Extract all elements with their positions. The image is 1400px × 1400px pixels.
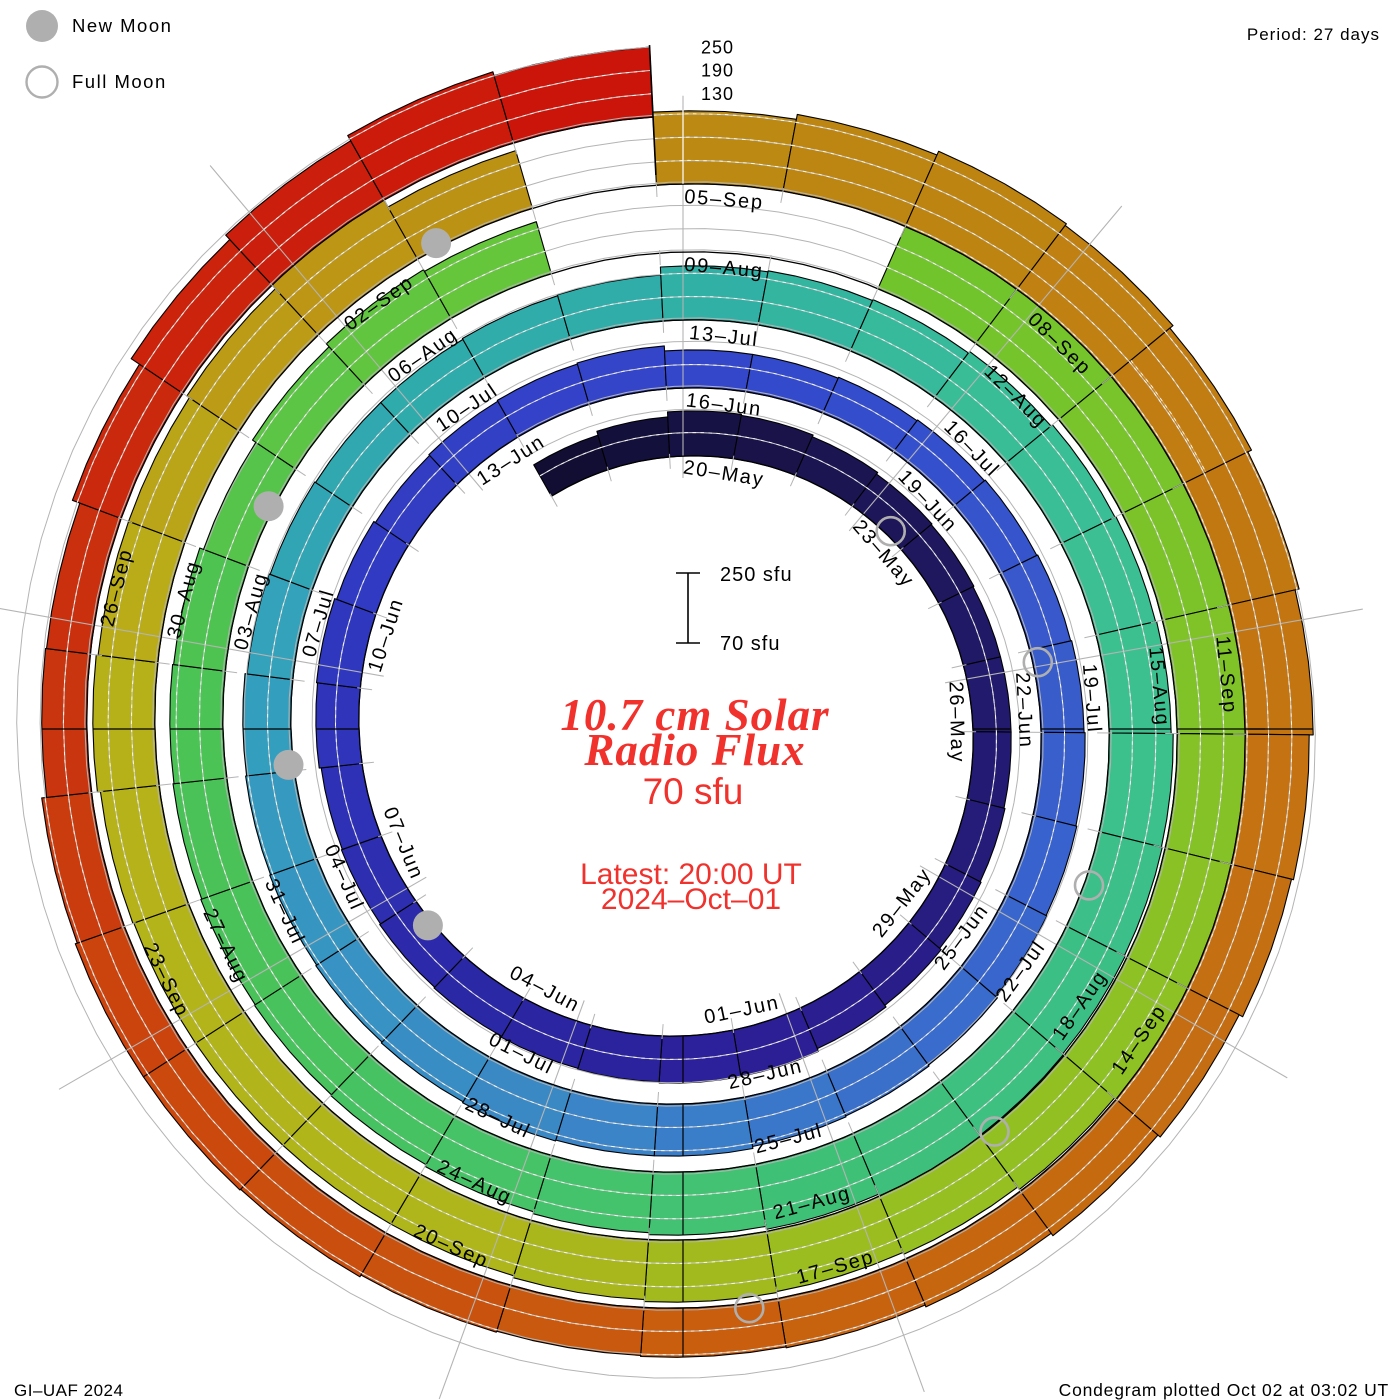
svg-text:70 sfu: 70 sfu: [720, 633, 780, 655]
svg-text:05–Sep: 05–Sep: [683, 186, 764, 214]
svg-text:New Moon: New Moon: [72, 15, 172, 36]
svg-text:26–May: 26–May: [945, 681, 969, 763]
svg-text:22–Jun: 22–Jun: [1011, 672, 1037, 749]
svg-text:13–Jul: 13–Jul: [688, 322, 760, 351]
svg-text:Full Moon: Full Moon: [72, 71, 167, 92]
svg-text:Radio Flux: Radio Flux: [583, 725, 805, 775]
svg-text:190: 190: [701, 61, 734, 81]
svg-text:130: 130: [701, 84, 734, 104]
svg-text:2024–Oct–01: 2024–Oct–01: [601, 883, 781, 916]
svg-text:250 sfu: 250 sfu: [720, 564, 793, 586]
svg-text:GI–UAF 2024: GI–UAF 2024: [14, 1381, 123, 1400]
svg-text:250: 250: [701, 37, 734, 57]
svg-text:Condegram plotted Oct 02 at 03: Condegram plotted Oct 02 at 03:02 UT: [1059, 1380, 1389, 1400]
svg-text:Period: 27 days: Period: 27 days: [1247, 25, 1380, 44]
svg-text:70 sfu: 70 sfu: [643, 771, 744, 812]
